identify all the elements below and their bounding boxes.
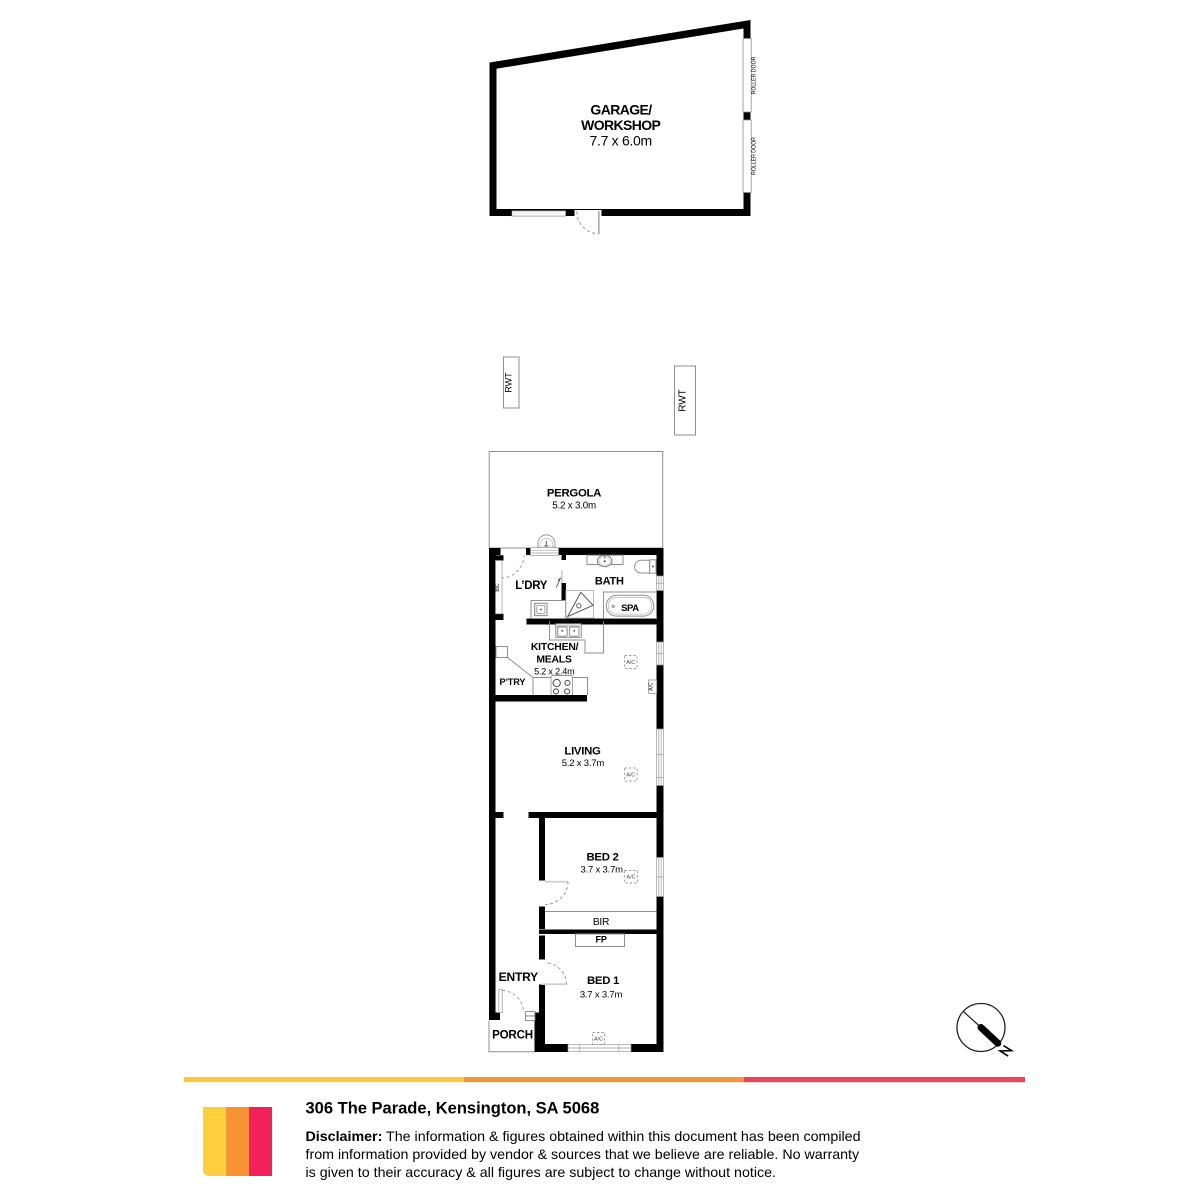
svg-text:PORCH: PORCH: [492, 1028, 533, 1041]
svg-text:A/C: A/C: [594, 1037, 603, 1043]
svg-text:BIC: BIC: [495, 583, 501, 592]
svg-text:A/C: A/C: [626, 660, 635, 666]
svg-text:is given to their accuracy & a: is given to their accuracy & all figures…: [306, 1165, 777, 1181]
svg-text:7.7 x 6.0m: 7.7 x 6.0m: [590, 133, 652, 149]
svg-text:ROLLER DOOR: ROLLER DOOR: [752, 137, 758, 175]
svg-text:ROLLER DOOR: ROLLER DOOR: [752, 56, 758, 94]
svg-text:KITCHEN/: KITCHEN/: [531, 642, 579, 653]
svg-text:LIVING: LIVING: [564, 746, 601, 758]
svg-text:FP: FP: [595, 935, 607, 945]
svg-text:from information provided by v: from information provided by vendor & so…: [306, 1147, 861, 1163]
svg-text:A/C: A/C: [626, 773, 635, 779]
svg-text:BIR: BIR: [593, 917, 609, 928]
svg-text:306 The Parade, Kensington, SA: 306 The Parade, Kensington, SA 5068: [306, 1100, 600, 1118]
svg-text:5.2 x 2.4m: 5.2 x 2.4m: [534, 667, 574, 677]
svg-text:BED 1: BED 1: [587, 975, 620, 987]
svg-text:RWT: RWT: [504, 372, 514, 393]
svg-text:WORKSHOP: WORKSHOP: [581, 117, 660, 133]
svg-text:Disclaimer: The information &: Disclaimer: The information & figures ob…: [306, 1129, 861, 1145]
svg-text:3.7 x 3.7m: 3.7 x 3.7m: [581, 865, 624, 876]
svg-text:5.2 x 3.7m: 5.2 x 3.7m: [562, 758, 605, 769]
svg-text:PERGOLA: PERGOLA: [547, 488, 601, 500]
svg-text:SPA: SPA: [621, 603, 639, 614]
svg-text:A/C: A/C: [627, 875, 636, 881]
svg-text:L’DRY: L’DRY: [515, 580, 548, 592]
svg-text:MEALS: MEALS: [536, 655, 572, 666]
svg-text:BED 2: BED 2: [586, 852, 618, 864]
svg-text:BATH: BATH: [595, 576, 624, 588]
svg-text:GARAGE/: GARAGE/: [590, 102, 652, 118]
svg-text:3.7 x 3.7m: 3.7 x 3.7m: [580, 989, 623, 1000]
svg-text:A/C: A/C: [649, 682, 655, 691]
svg-text:ENTRY: ENTRY: [499, 970, 538, 984]
svg-text:P’TRY: P’TRY: [500, 677, 526, 687]
svg-text:RWT: RWT: [677, 389, 688, 412]
svg-text:5.2 x 3.0m: 5.2 x 3.0m: [552, 500, 596, 511]
